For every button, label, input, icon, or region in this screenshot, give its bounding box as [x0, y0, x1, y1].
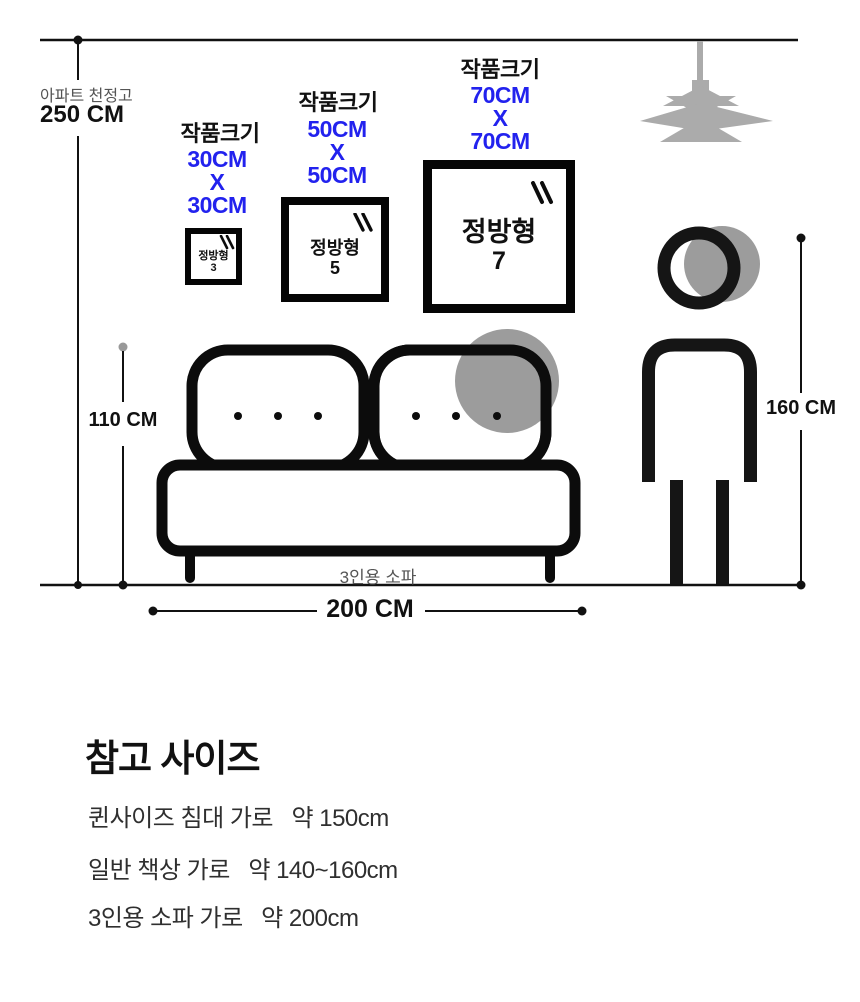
artwork1-height: 30CM — [137, 194, 297, 217]
artwork3-height: 70CM — [420, 130, 580, 153]
artwork3-size-value: 70CM X 70CM — [420, 84, 580, 153]
artwork-frame-large: 정방형 7 — [423, 160, 575, 313]
artwork2-width: 50CM — [257, 118, 417, 141]
reference-item-bed: 퀸사이즈 침대 가로 약 150cm — [88, 798, 389, 833]
sofa-width-value: 200 CM — [300, 595, 440, 624]
person-height-value: 160 CM — [762, 397, 840, 420]
person-torso — [649, 345, 751, 482]
artwork2-size-value: 50CM X 50CM — [257, 118, 417, 187]
glass-reflection-icon — [528, 181, 554, 205]
lamp-cord — [697, 41, 703, 82]
reference-item-sofa: 3인용 소파 가로 약 200cm — [88, 898, 358, 933]
person-figure — [649, 226, 761, 584]
sofa-back-cushion-left — [192, 350, 364, 468]
artwork2-size-caption: 작품크기 — [258, 85, 418, 117]
artwork3-width: 70CM — [420, 84, 580, 107]
person-leg-right — [716, 480, 729, 584]
sofa-height-measure — [119, 343, 128, 590]
glass-reflection-icon — [351, 213, 373, 233]
person-leg-left — [670, 480, 683, 584]
frame3-number: 7 — [492, 247, 506, 275]
sofa-seat-base — [162, 465, 575, 551]
frame2-name: 정방형 — [310, 238, 360, 258]
sofa — [162, 329, 575, 578]
frame1-name: 정방형 — [198, 250, 228, 262]
artwork-frame-small: 정방형 3 — [185, 228, 242, 285]
reference-title: 참고 사이즈 — [85, 728, 259, 782]
sofa-height-value: 110 CM — [85, 409, 161, 432]
frame1-number: 3 — [210, 262, 216, 274]
size-guide-infographic: 아파트 천정고 250 CM 작품크기 30CM X 30CM 정방형 3 작품… — [0, 0, 860, 1002]
sofa-label: 3인용 소파 — [308, 563, 448, 588]
ceiling-height-value: 250 CM — [40, 101, 124, 129]
artwork3-x: X — [420, 107, 580, 130]
pendant-lamp — [640, 41, 773, 142]
glass-reflection-icon — [218, 235, 235, 250]
frame2-number: 5 — [330, 258, 340, 278]
reference-item-desk: 일반 책상 가로 약 140~160cm — [88, 850, 398, 885]
artwork-frame-medium: 정방형 5 — [281, 197, 389, 302]
frame3-name: 정방형 — [462, 218, 537, 247]
artwork3-size-caption: 작품크기 — [420, 52, 580, 84]
artwork2-x: X — [257, 141, 417, 164]
artwork2-height: 50CM — [257, 164, 417, 187]
